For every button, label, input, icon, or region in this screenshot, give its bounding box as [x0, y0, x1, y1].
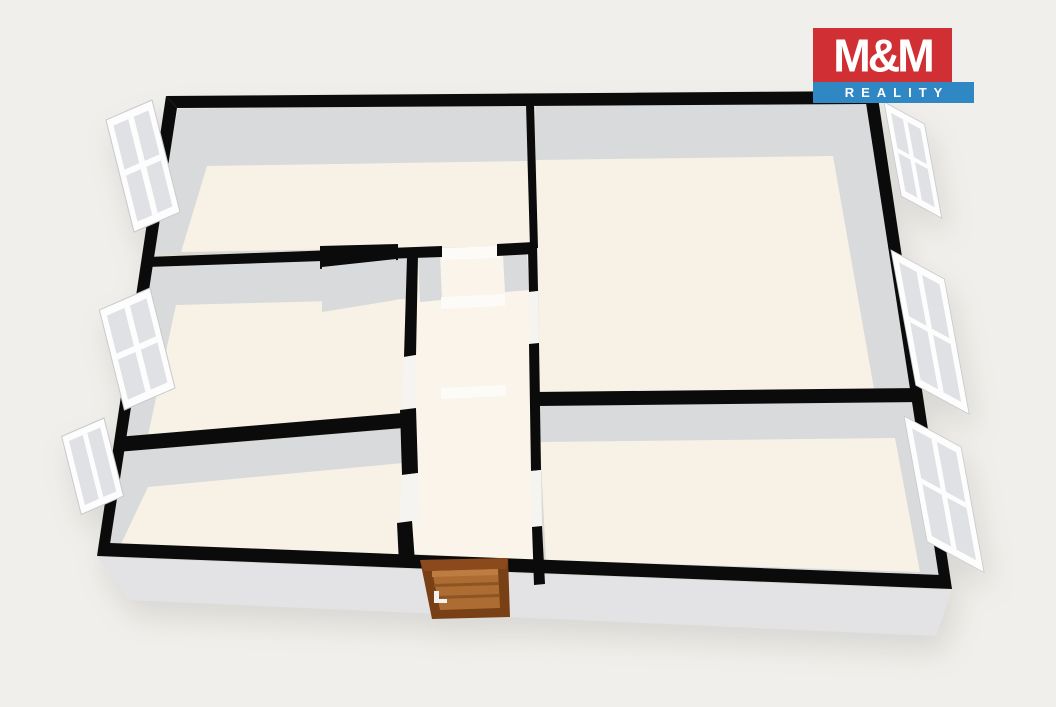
- floorplan-3d-render: [0, 0, 1056, 707]
- door-opening-top-right-room: [529, 291, 539, 345]
- logo-brand-text: M&M: [833, 32, 931, 79]
- logo-tagline-bar: REALITY: [813, 82, 974, 103]
- hallway-top-left-wallface: [418, 254, 442, 302]
- logo-brand-box: M&M: [813, 28, 952, 82]
- room-bottom-right: [540, 401, 941, 575]
- entrance-door-frame-top: [420, 558, 508, 571]
- room-top-right: [536, 100, 912, 394]
- room-top-left-floor: [181, 161, 531, 252]
- entrance-door: [420, 558, 510, 619]
- wall-hallway-east-1: [528, 247, 538, 292]
- wall-hallway-west-3: [397, 521, 415, 564]
- logo-tagline-text: REALITY: [838, 86, 950, 99]
- window-left-3: [62, 418, 124, 514]
- hallway-top-right-wallface: [503, 252, 529, 292]
- wall-hallway-east-2: [529, 343, 541, 471]
- door-opening-bottom-right-room: [531, 470, 542, 528]
- door-opening-bottom-left-room: [399, 473, 420, 524]
- hallway-north-door-threshold: [441, 246, 500, 260]
- hallway: [412, 246, 536, 560]
- wall-hallway-east-3: [532, 526, 545, 585]
- room-bottom-right-floor: [540, 438, 920, 572]
- room-top-right-floor: [536, 156, 874, 393]
- entrance-door-handle-bar: [434, 599, 447, 603]
- room-top-left: [153, 105, 531, 252]
- mm-reality-logo: M&M REALITY: [813, 28, 974, 103]
- floorplan-screenshot: M&M REALITY: [0, 0, 1056, 707]
